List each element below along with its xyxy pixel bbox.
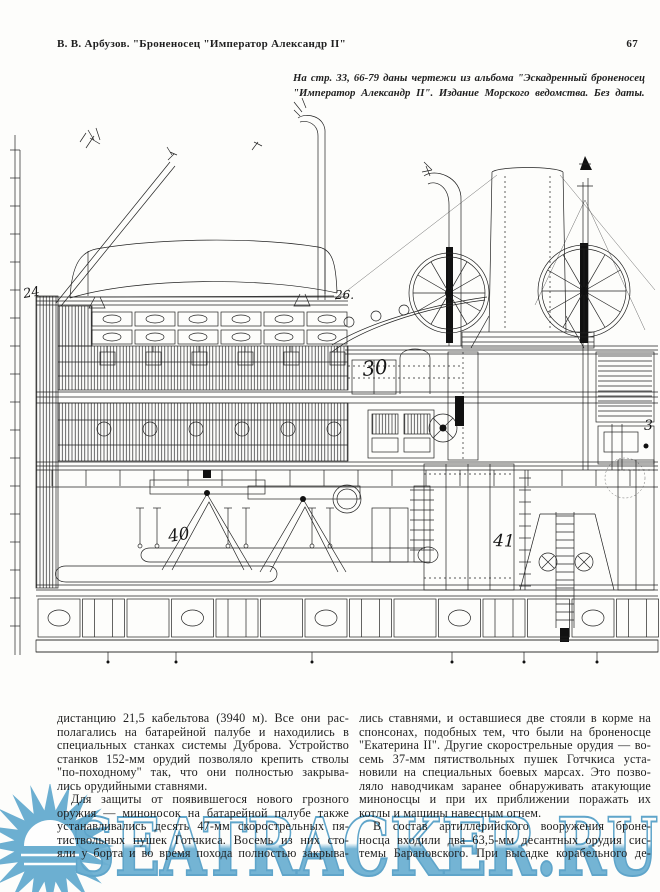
- text-line: полагались на батарейной палубе и находи…: [57, 726, 349, 740]
- text-line: устанавливались десять 47-мм скорострель…: [57, 820, 349, 834]
- text-line: новили на специальных боевых марсах. Это…: [359, 766, 651, 780]
- fan-wheel-right: [538, 243, 630, 343]
- svg-text:30: 30: [361, 354, 389, 381]
- text-line: носца входили два 63,5-мм десантных оруд…: [359, 834, 651, 848]
- boiler-compartment: [36, 296, 658, 588]
- svg-text:26.: 26.: [334, 288, 354, 302]
- text-line: темы Барановского. При высадке корабельн…: [359, 847, 651, 861]
- text-line: тиствольных пушек Готчкиса. Восемь из ни…: [57, 834, 349, 848]
- body-text: дистанцию 21,5 кабельтова (3940 м). Все …: [57, 712, 651, 861]
- text-line: "по-походному" так, что они полностью за…: [57, 766, 349, 780]
- text-column-left: дистанцию 21,5 кабельтова (3940 м). Все …: [57, 712, 349, 861]
- ruler-scale: [10, 135, 20, 655]
- engine-room: [56, 470, 532, 586]
- text-line: котлы и машины навесным огнем.: [359, 807, 651, 821]
- text-line: семь 37-мм пятиствольных пушек Готчкиса …: [359, 753, 651, 767]
- text-line: В состав артиллерийского вооружения брон…: [359, 820, 651, 834]
- svg-text:3: 3: [644, 418, 653, 434]
- scanned-book-page: В. В. Арбузов. "Броненосец "Император Ал…: [0, 0, 660, 892]
- text-line: специальных станках системы Дуброва. Уст…: [57, 739, 349, 753]
- text-line: миноносцы и при их приближении поражать …: [359, 793, 651, 807]
- text-line: ляло наводчикам заранее обнаруживать ата…: [359, 780, 651, 794]
- coal-bunkers: [424, 458, 654, 642]
- svg-text:40: 40: [166, 524, 192, 547]
- text-line: спонсонах, подобных тем, что были на бро…: [359, 726, 651, 740]
- svg-text:41: 41: [492, 531, 515, 552]
- text-column-right: лись ставнями, и оставшиеся две стояли в…: [359, 712, 651, 861]
- ships-boat: [70, 240, 337, 308]
- funnel: [462, 168, 594, 349]
- text-line: лись ставнями, и оставшиеся две стояли в…: [359, 712, 651, 726]
- text-line: яли у борта и во время похода полностью …: [57, 847, 349, 861]
- text-line: Для защиты от появившегося нового грозно…: [57, 793, 349, 807]
- text-line: лись орудийными ставнями.: [57, 780, 349, 794]
- text-line: станков 152-мм орудий позволяло крепить …: [57, 753, 349, 767]
- text-line: дистанцию 21,5 кабельтова (3940 м). Все …: [57, 712, 349, 726]
- svg-text:24: 24: [21, 284, 41, 302]
- text-line: "Екатерина II". Другие скорострельные ор…: [359, 739, 651, 753]
- fan-wheel-left: [409, 247, 489, 343]
- double-bottom: [36, 585, 659, 664]
- text-line: оружия — миноносок на батарейной палубе …: [57, 807, 349, 821]
